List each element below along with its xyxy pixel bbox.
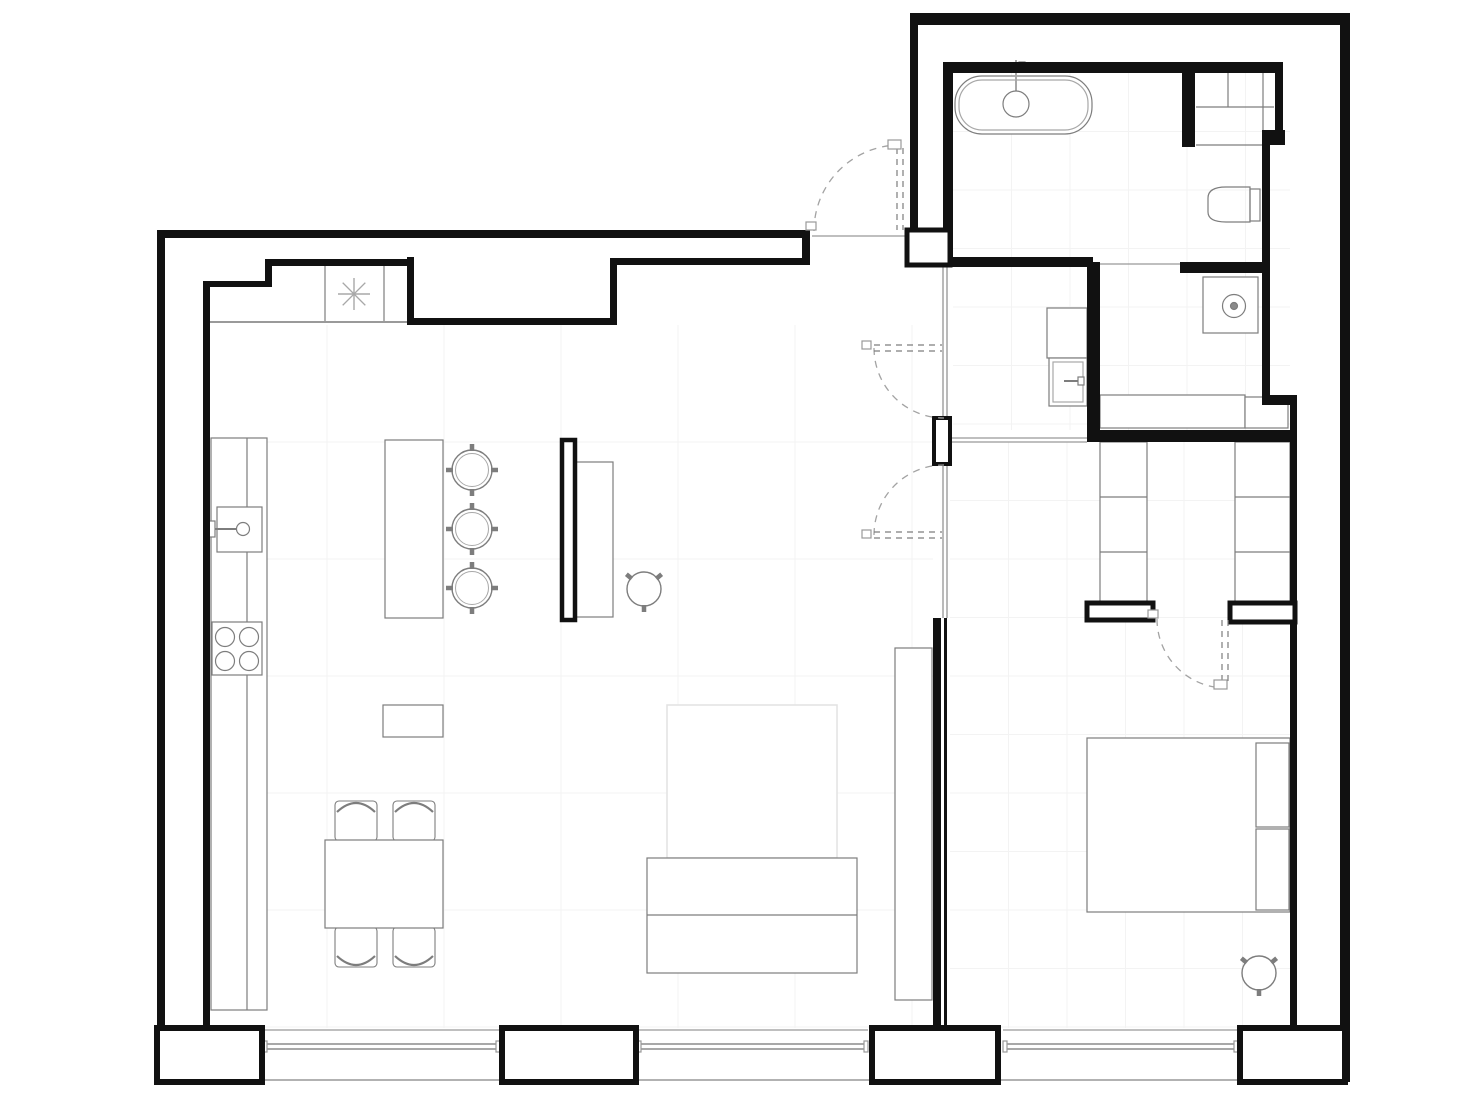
wall-closet-bedroom-top [1087, 430, 1295, 442]
low-cabinet [383, 705, 443, 737]
window-frame-tick [1003, 1041, 1007, 1052]
wall-hall-closet-left [1087, 262, 1100, 442]
hall-door-upper-swing-arc [874, 348, 944, 418]
door-hardware [862, 341, 871, 349]
washbasin-faucet-base [1078, 377, 1084, 385]
side-stool-foot [656, 574, 661, 578]
sink-faucet-head [237, 523, 250, 536]
rug [667, 705, 837, 858]
wall-bathroom-top [943, 62, 1283, 73]
wall-shaft-bottom [407, 318, 617, 325]
wall-laundry-right [1262, 273, 1270, 397]
door-hardware [1148, 610, 1158, 618]
wall-living-bedroom-partition-face [944, 618, 947, 1030]
wall-closet-right [1275, 63, 1283, 137]
entry-door-swing-arc [814, 145, 900, 231]
door-hardware [862, 530, 871, 538]
wall-bath-closet-divider [1182, 62, 1195, 147]
tv-feature-wall [562, 440, 575, 620]
bar-stool [452, 450, 492, 490]
door-hardware [806, 222, 816, 230]
wall-shaft-left [407, 257, 414, 325]
floor-plan-page [0, 0, 1477, 1100]
wall-entry-left [910, 13, 918, 230]
wardrobe-left-column [1100, 442, 1147, 602]
dining-table [325, 840, 443, 928]
wall-bathroom-bottom [943, 257, 1093, 267]
glass-partition-post [934, 418, 950, 464]
wall-left-inner-face [203, 281, 210, 1030]
wall-top-inner-face [610, 258, 810, 265]
wall-niche-jog [203, 281, 269, 287]
wall-right-inner-face [1290, 395, 1297, 1082]
bedroom-door-swing-arc [1157, 619, 1226, 688]
cooktop-burner [240, 652, 259, 671]
entry-door-jamb [802, 230, 810, 265]
cooktop-burner [216, 652, 235, 671]
floor-plan-drawing [0, 0, 1477, 1100]
bedroom-stool-foot [1271, 958, 1276, 962]
hall-door-lower-swing-arc [874, 465, 944, 535]
wall-top-right-outer [917, 13, 1350, 25]
wall-top-left-outer [157, 230, 810, 238]
toilet-bowl [1208, 187, 1250, 222]
side-stool-foot [626, 574, 631, 578]
wall-toilet-right [1262, 145, 1270, 262]
door-hardware [888, 140, 901, 149]
media-sideboard [895, 648, 932, 1000]
pier-partition-base [872, 1028, 998, 1082]
wall-right-outer [1340, 13, 1350, 1082]
laundry-sink-drain [1231, 303, 1238, 310]
hall-cabinet [1047, 308, 1087, 358]
wall-niche-lintel [265, 259, 413, 266]
bar-stool [452, 509, 492, 549]
wall-shaft-right [610, 258, 617, 325]
bathtub-faucet [1003, 91, 1029, 117]
wall-living-bedroom-partition [933, 618, 941, 1030]
pier-between-windows [502, 1028, 636, 1082]
toilet-tank [1250, 189, 1260, 221]
wall-left-outer [157, 230, 165, 1082]
pier-southeast-corner [1240, 1028, 1345, 1082]
kitchen-island [385, 440, 443, 618]
pier-southwest-corner [157, 1028, 262, 1082]
bar-stool [452, 568, 492, 608]
entry-pier [907, 230, 950, 265]
bedroom-door-wall-left [1087, 603, 1153, 620]
pillow [1256, 829, 1289, 910]
door-hardware [1214, 680, 1227, 689]
tv-sideboard [575, 462, 613, 617]
wall-closet-jog [1262, 130, 1285, 145]
hall-closet-cabinet [1100, 395, 1245, 428]
pillow [1256, 743, 1289, 827]
bedroom-door-wall-right [1230, 603, 1295, 622]
wall-toilet-laundry-divider [1180, 262, 1270, 273]
cooktop-burner [240, 628, 259, 647]
cooktop-burner [216, 628, 235, 647]
wardrobe-right-column [1235, 442, 1290, 602]
window-frame-tick [864, 1041, 868, 1052]
